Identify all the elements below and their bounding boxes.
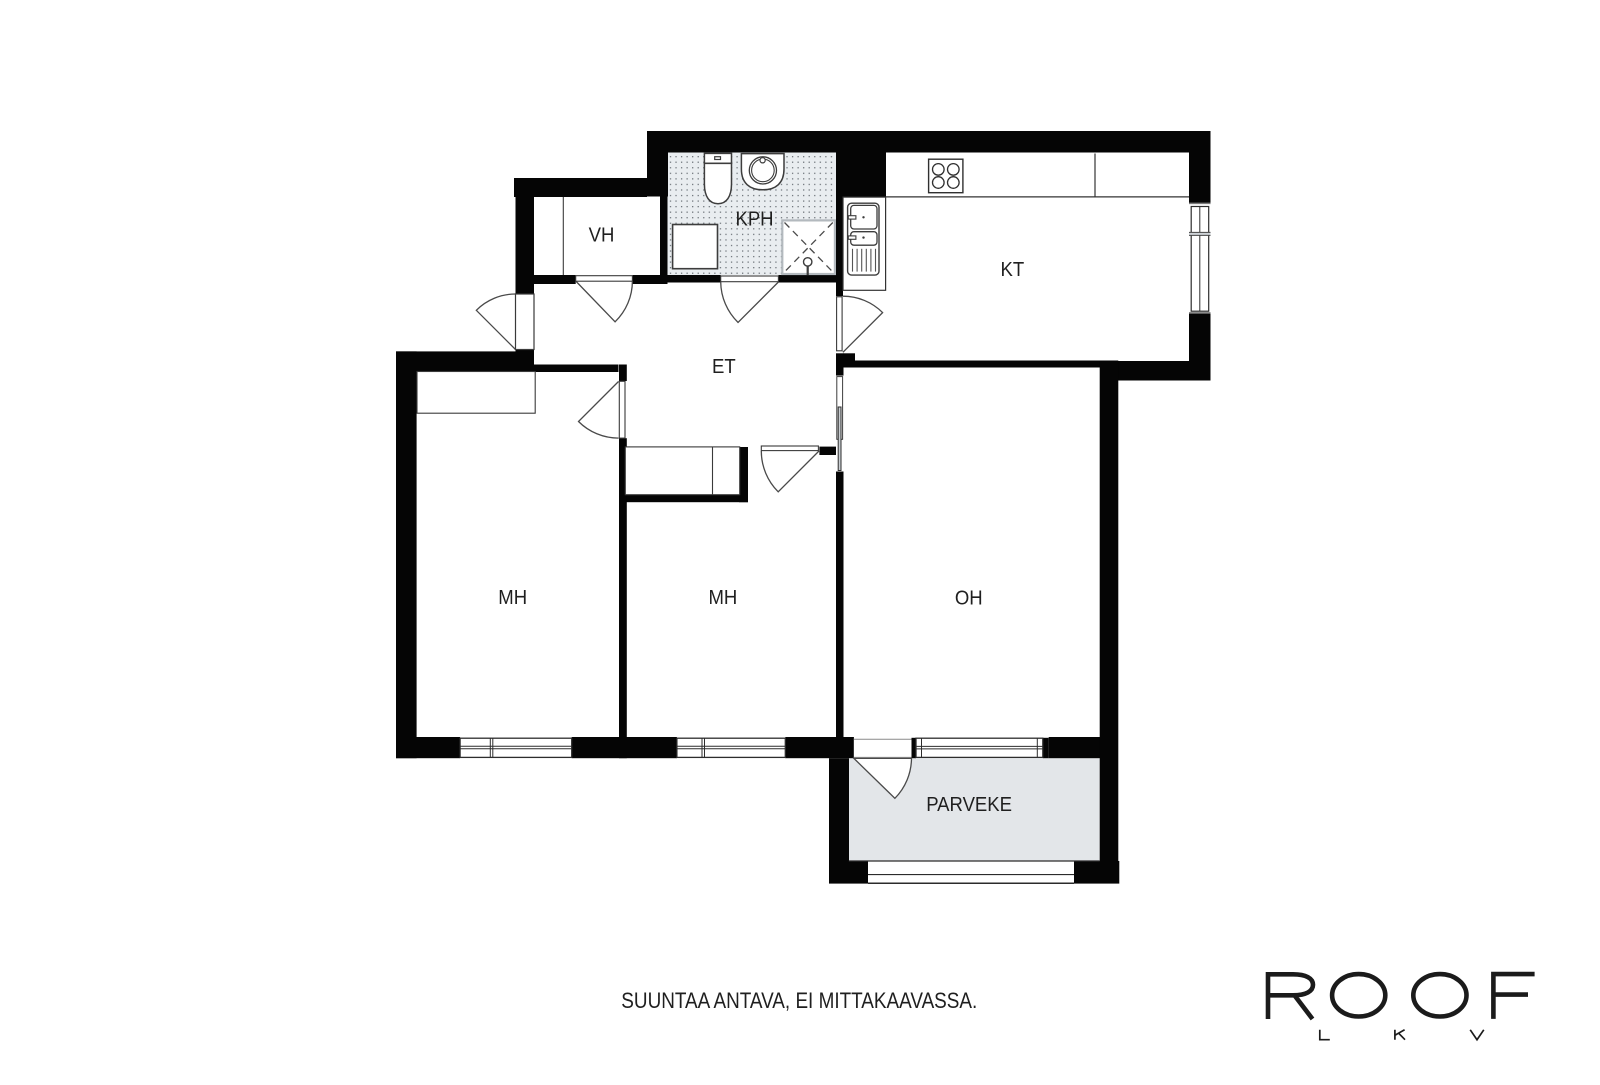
svg-text:KPH: KPH xyxy=(735,207,773,230)
svg-text:ET: ET xyxy=(712,355,736,378)
svg-text:OH: OH xyxy=(955,587,983,610)
svg-text:MH: MH xyxy=(498,586,527,609)
svg-text:KT: KT xyxy=(1000,258,1024,281)
svg-text:SUUNTAA ANTAVA, EI MITTAKAAVAS: SUUNTAA ANTAVA, EI MITTAKAAVASSA. xyxy=(621,990,977,1013)
svg-text:PARVEKE: PARVEKE xyxy=(926,793,1012,816)
svg-text:MH: MH xyxy=(708,586,737,609)
svg-text:VH: VH xyxy=(589,224,615,247)
